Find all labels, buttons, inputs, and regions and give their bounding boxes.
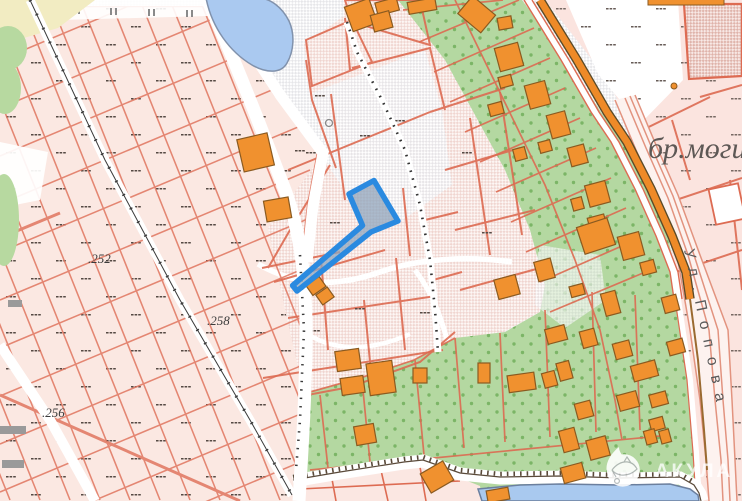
svg-text:.252: .252 <box>88 251 111 266</box>
svg-text:.256: .256 <box>42 405 65 420</box>
svg-text:.258: .258 <box>207 313 230 328</box>
svg-text:АКУЛА: АКУЛА <box>655 461 733 482</box>
svg-text:бр.моги: бр.моги <box>648 132 742 165</box>
